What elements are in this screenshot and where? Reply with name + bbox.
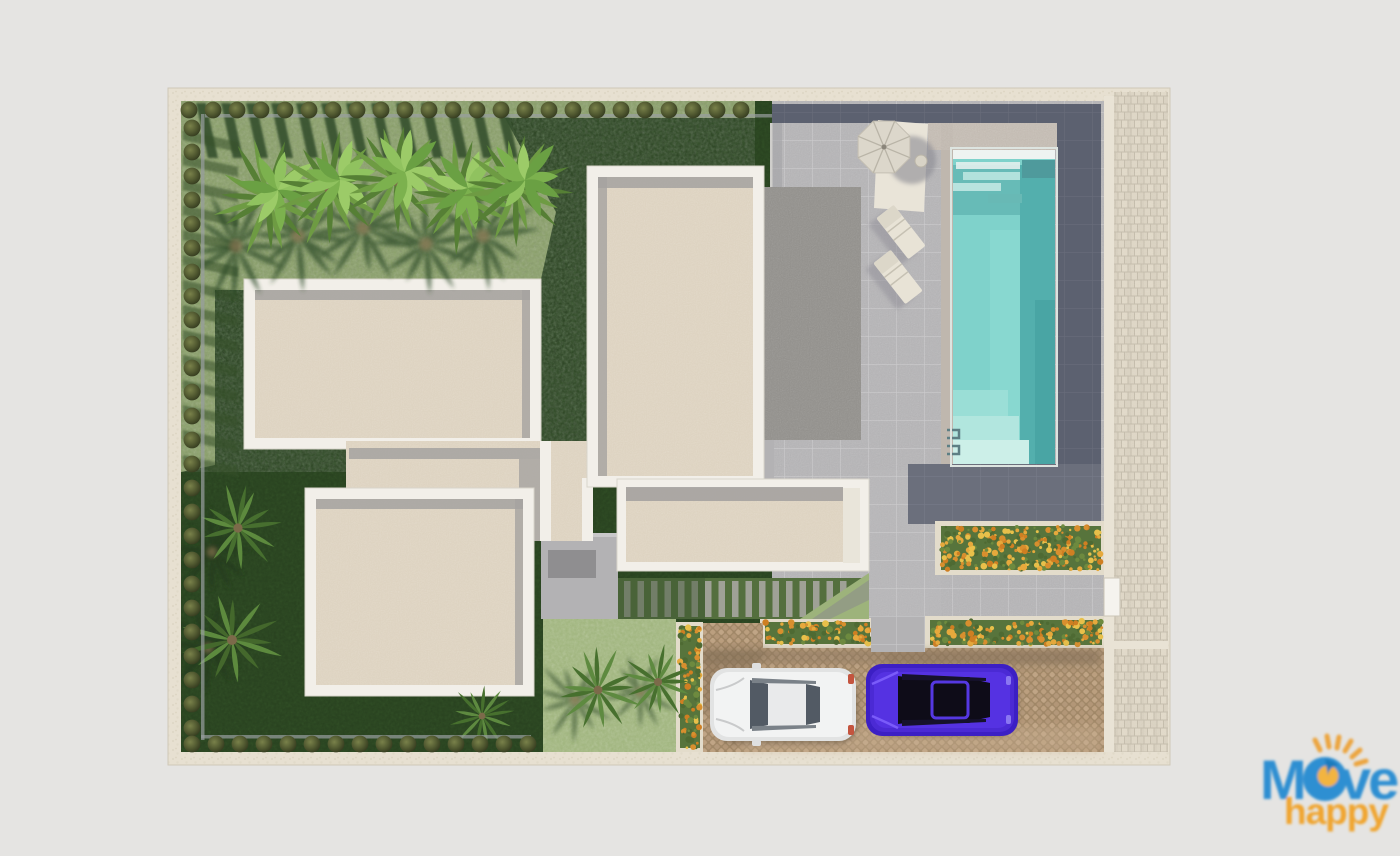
svg-text:happy: happy [1284,791,1389,832]
